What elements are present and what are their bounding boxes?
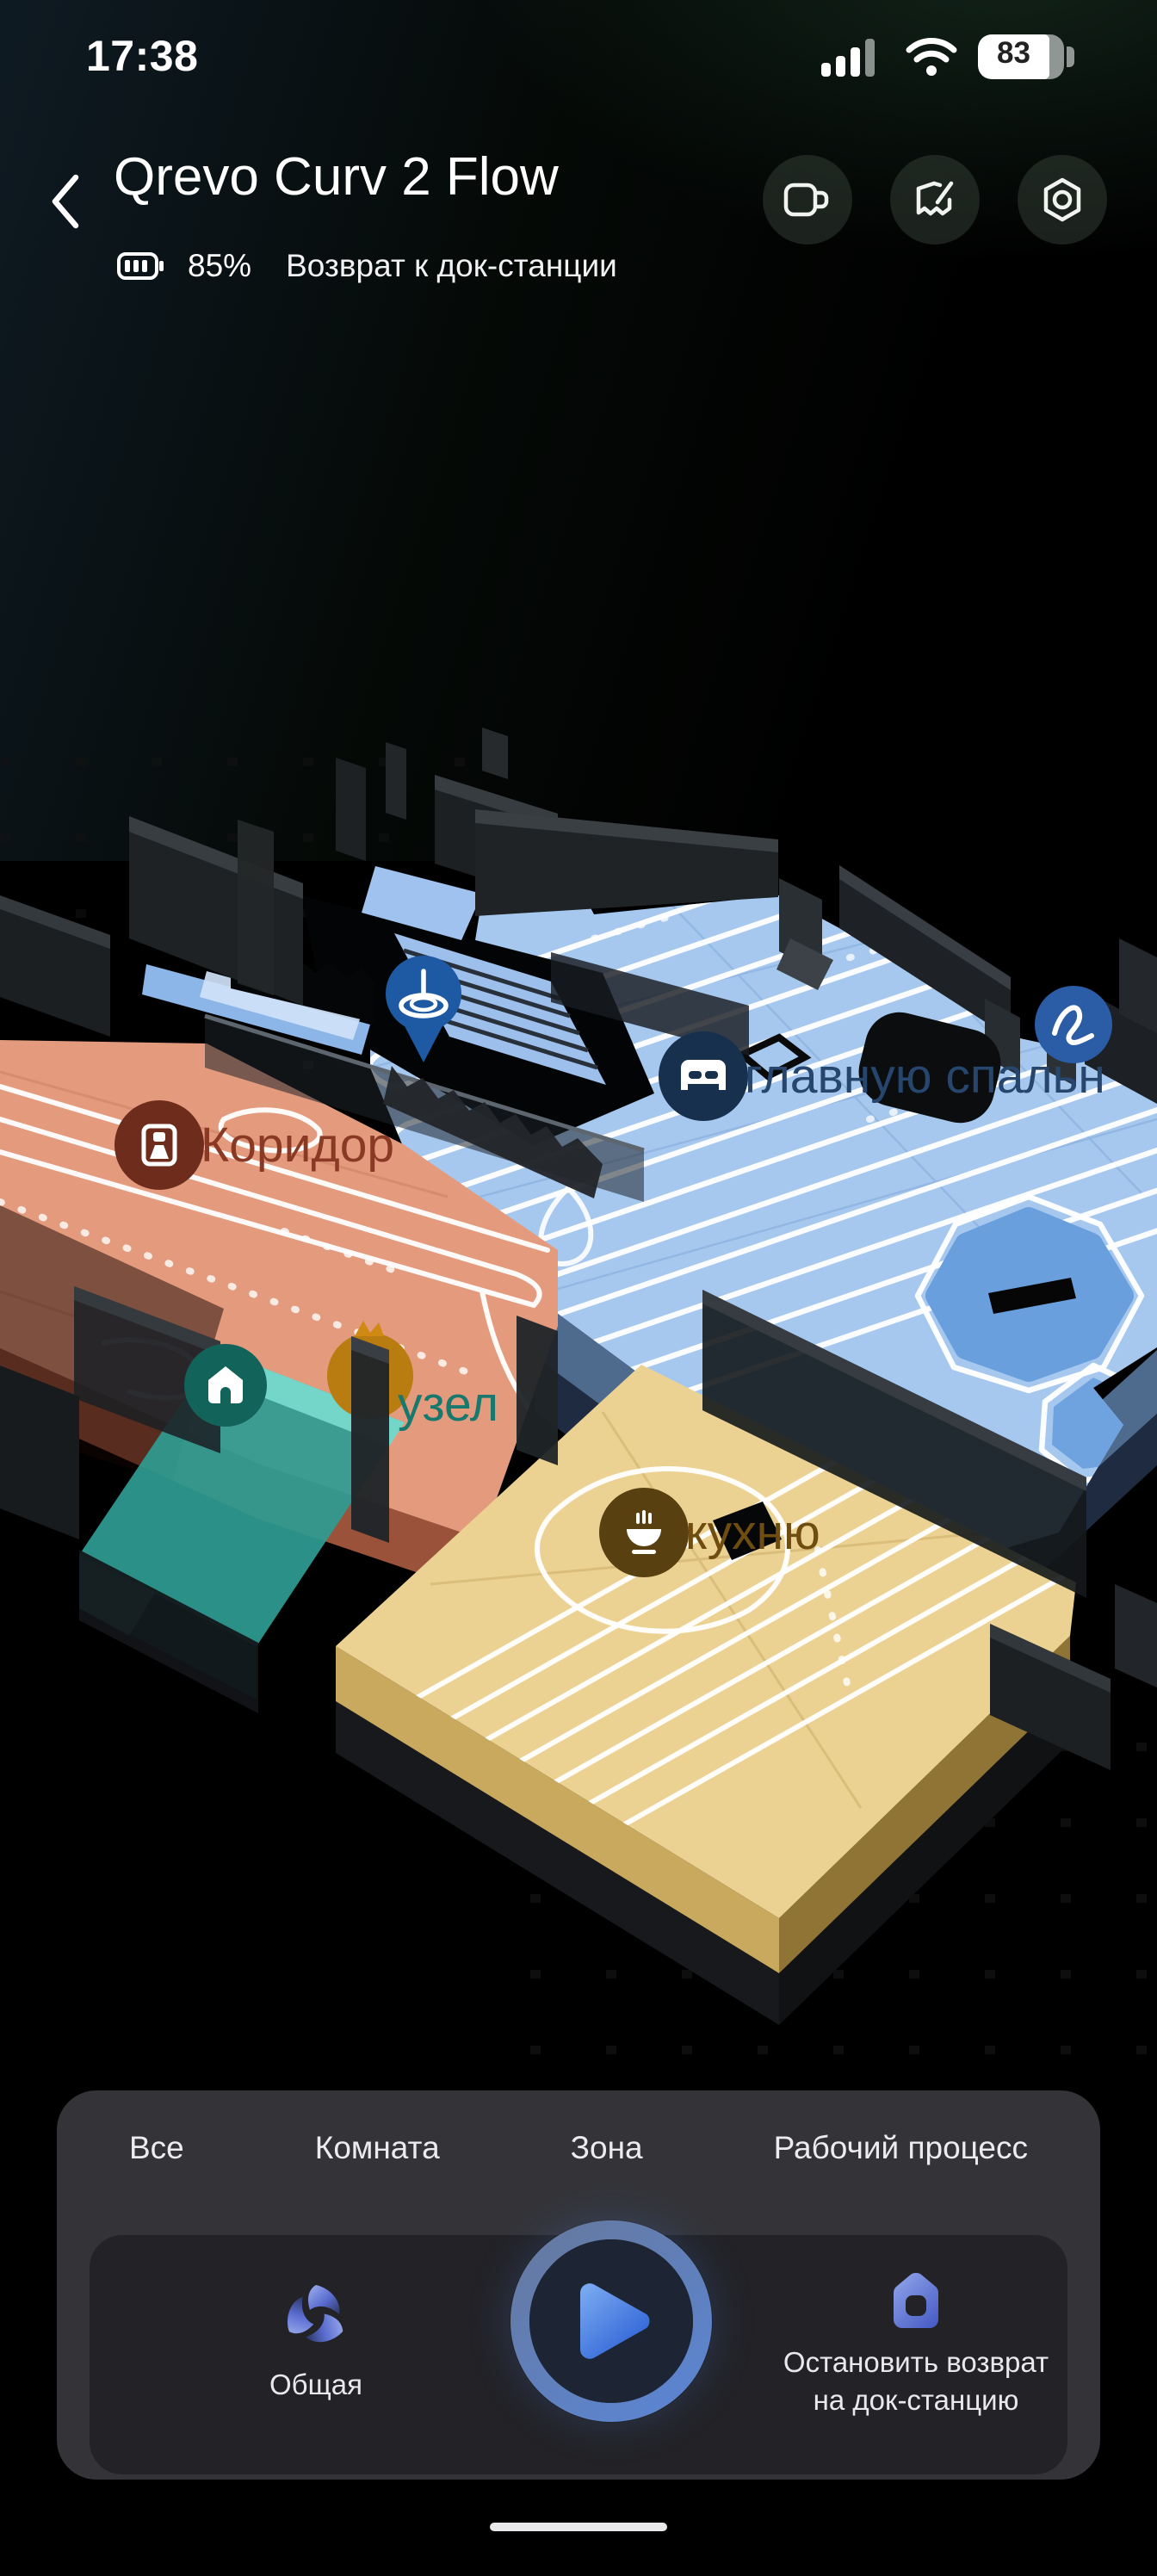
corridor-badge [114,1100,204,1190]
clock: 17:38 [86,31,198,81]
meal-icon [618,1507,670,1558]
stop-return-label-line2: на док-станцию [783,2381,1049,2419]
kitchen-badge [599,1488,689,1577]
home-icon [201,1361,250,1409]
wifi-icon [904,36,959,77]
dock-marker[interactable] [184,1344,267,1427]
corridor-label-text: Коридор [201,1117,394,1173]
kitchen-label-text: кухню [685,1504,820,1561]
robot-battery-percent: 85% [188,248,251,284]
room-label-kitchen[interactable]: кухню [599,1488,820,1577]
room-label-bathroom[interactable]: узел [398,1376,498,1433]
back-button[interactable] [43,167,95,236]
dock-home-icon [882,2268,950,2335]
tab-all[interactable]: Все [129,2130,184,2166]
start-cleaning-button[interactable] [510,2220,713,2423]
status-bar: 17:38 83 [0,0,1157,103]
battery-indicator: 83 [978,34,1064,79]
swirl-icon [275,2275,357,2357]
app-screen: Коридор главную спальн узел [0,0,1157,2576]
tab-zone[interactable]: Зона [571,2130,643,2166]
bedroom-label-text: главную спальн [745,1048,1105,1105]
cellular-signal-icon [821,35,885,78]
bathroom-label-text: узел [398,1377,498,1432]
controls-panel: Общая [90,2235,1067,2474]
room-label-bedroom[interactable]: главную спальн [659,1031,1105,1121]
chevron-left-icon [55,177,76,226]
home-indicator[interactable] [490,2523,667,2531]
clean-mode-label: Общая [269,2366,362,2404]
bottom-sheet: Все Комната Зона Рабочий процесс [57,2090,1100,2480]
map-3d-view[interactable]: Коридор главную спальн узел [0,0,1157,2084]
device-title: Qrevo Curv 2 Flow [114,146,559,207]
tab-workflow[interactable]: Рабочий процесс [774,2130,1028,2166]
clean-mode-button[interactable]: Общая [251,2275,381,2404]
robot-status-text: Возврат к док-станции [286,248,617,284]
tab-room[interactable]: Комната [315,2130,440,2166]
bed-icon [677,1050,729,1102]
robot-battery-icon [117,251,165,282]
map-edit-icon [912,178,958,221]
edit-map-button[interactable] [890,155,980,245]
mode-tabs: Все Комната Зона Рабочий процесс [57,2130,1100,2166]
stop-return-label-line1: Остановить возврат [783,2344,1049,2381]
video-camera-icon [783,181,832,219]
position-pin[interactable] [384,952,463,1066]
door-icon [134,1120,184,1170]
battery-percentage: 83 [978,36,1049,71]
video-camera-button[interactable] [763,155,852,245]
stop-return-dock-button[interactable]: Остановить возврат на док-станцию [778,2268,1054,2419]
device-settings-icon [1039,176,1086,223]
bedroom-badge [659,1031,748,1121]
room-label-corridor[interactable]: Коридор [114,1100,394,1190]
device-settings-button[interactable] [1018,155,1107,245]
play-icon [510,2220,713,2423]
